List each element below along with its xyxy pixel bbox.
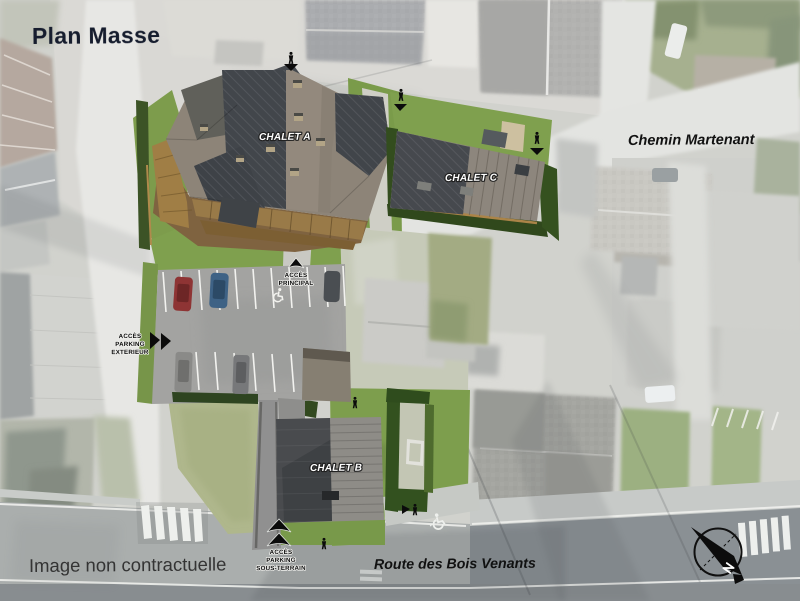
svg-text:EXTERIEUR: EXTERIEUR <box>111 349 149 356</box>
svg-text:ACCÈS: ACCÈS <box>270 548 293 556</box>
svg-text:PARKING: PARKING <box>115 341 145 348</box>
svg-text:SOUS-TERRAIN: SOUS-TERRAIN <box>256 565 306 572</box>
svg-text:Plan Masse: Plan Masse <box>32 22 160 49</box>
svg-text:CHALET A: CHALET A <box>259 132 311 143</box>
svg-text:CHALET C: CHALET C <box>445 173 498 184</box>
svg-text:CHALET B: CHALET B <box>310 463 362 474</box>
svg-text:Chemin Martenant: Chemin Martenant <box>628 132 756 149</box>
svg-text:ACCÈS: ACCÈS <box>285 271 308 279</box>
svg-text:PARKING: PARKING <box>266 557 296 564</box>
svg-text:ACCÈS: ACCÈS <box>119 332 142 340</box>
svg-text:Route des Bois Venants: Route des Bois Venants <box>374 556 536 573</box>
svg-text:Image non contractuelle: Image non contractuelle <box>29 553 227 576</box>
svg-text:PRINCIPAL: PRINCIPAL <box>279 280 314 287</box>
